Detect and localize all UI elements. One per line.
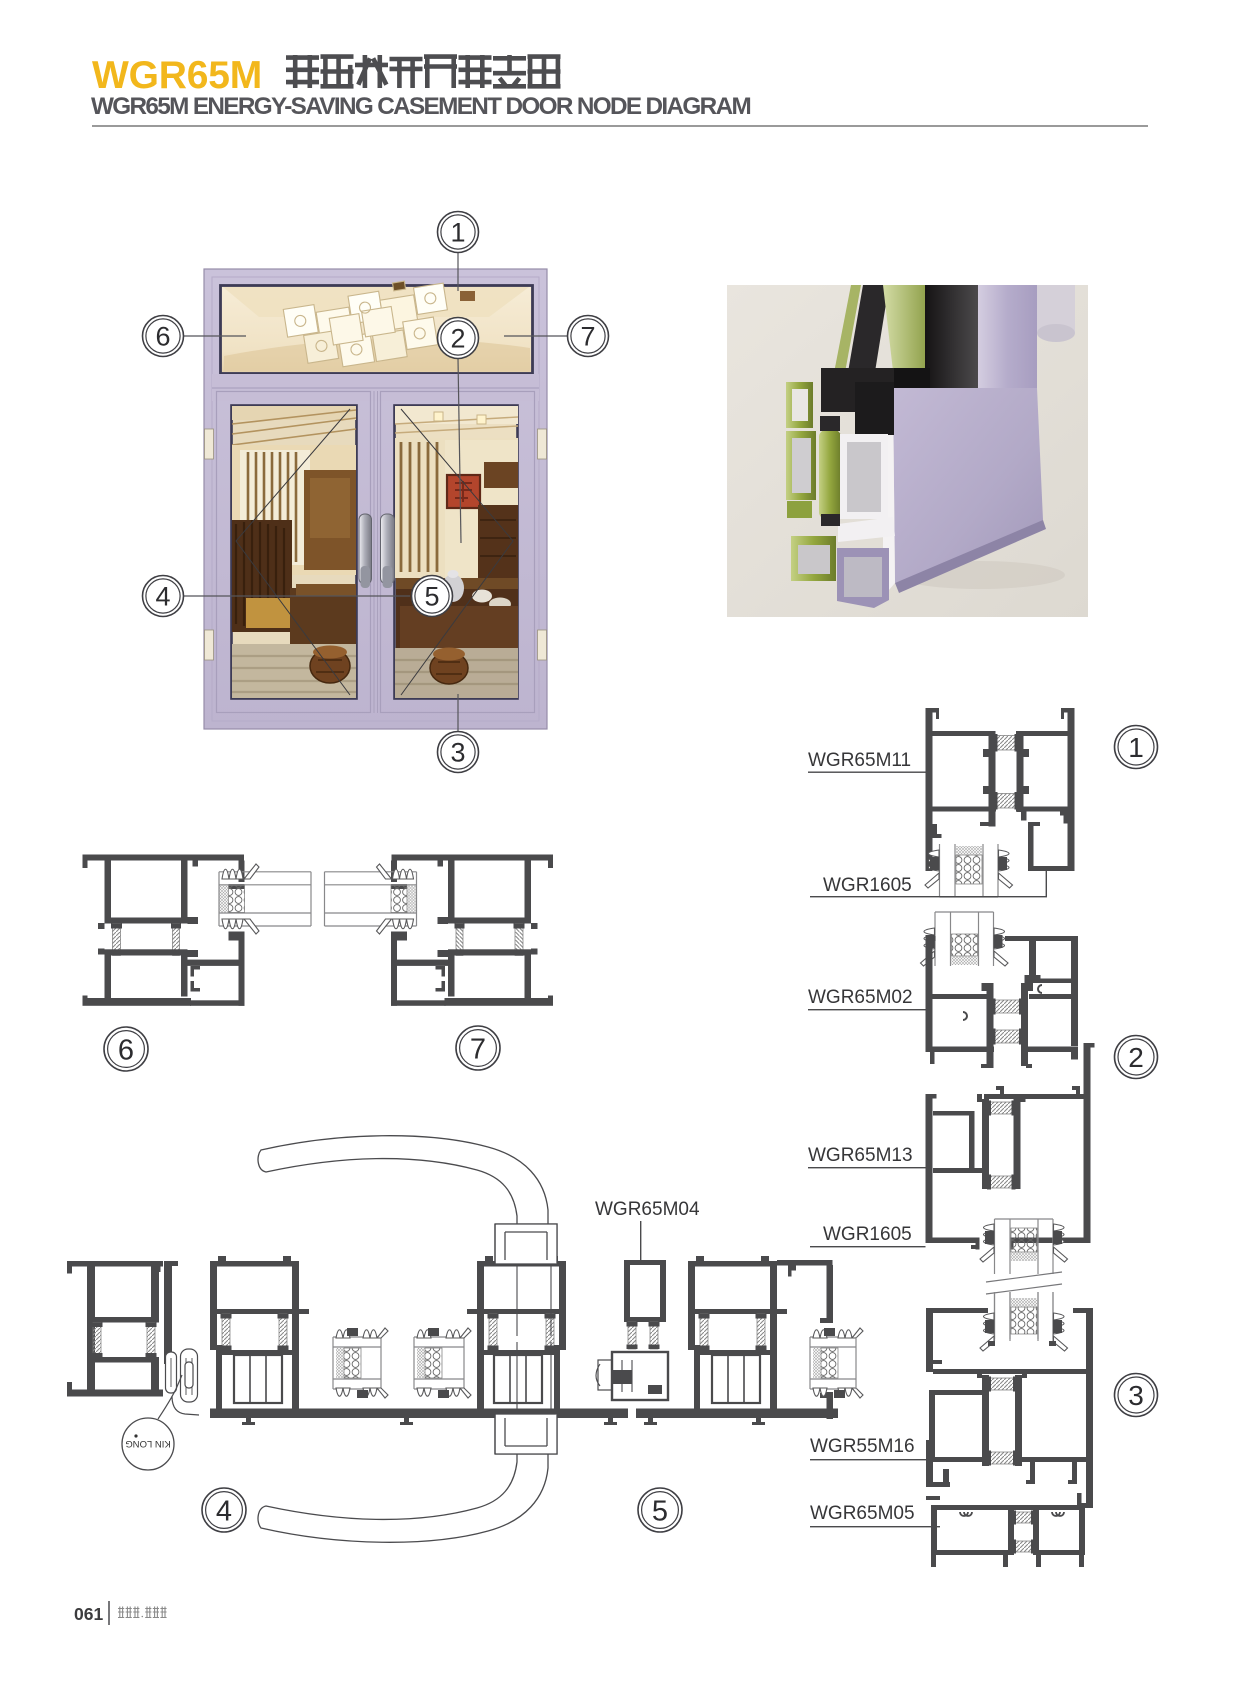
svg-text:WGR65M02: WGR65M02 — [808, 987, 913, 1008]
svg-text:4: 4 — [155, 582, 170, 612]
svg-text:WGR65M05: WGR65M05 — [810, 1503, 915, 1524]
svg-text:3: 3 — [1128, 1380, 1144, 1411]
svg-text:061: 061 — [74, 1604, 103, 1624]
svg-text:6: 6 — [155, 322, 170, 352]
svg-text:WGR65M04: WGR65M04 — [595, 1199, 700, 1220]
svg-text:4: 4 — [216, 1495, 232, 1527]
svg-text:2: 2 — [1128, 1042, 1144, 1073]
svg-text:WGR65M13: WGR65M13 — [808, 1145, 913, 1166]
svg-text:6: 6 — [118, 1034, 134, 1066]
svg-text:WGR1605: WGR1605 — [823, 1224, 912, 1245]
svg-text:WGR65M ENERGY-SAVING CASEMENT: WGR65M ENERGY-SAVING CASEMENT DOOR NODE … — [91, 93, 750, 120]
svg-text:2: 2 — [450, 324, 465, 354]
svg-text:1: 1 — [450, 218, 465, 248]
svg-text:5: 5 — [424, 582, 439, 612]
svg-text:WGR65M11: WGR65M11 — [808, 750, 911, 771]
svg-text:5: 5 — [652, 1495, 668, 1527]
svg-text:3: 3 — [450, 738, 465, 768]
svg-text:1: 1 — [1128, 732, 1144, 763]
svg-text:7: 7 — [580, 322, 595, 352]
svg-text:KIN LONG: KIN LONG — [125, 1438, 170, 1449]
svg-text:7: 7 — [470, 1033, 486, 1065]
svg-text:WGR55M16: WGR55M16 — [810, 1436, 915, 1457]
svg-text:WGR65M: WGR65M — [92, 54, 262, 97]
svg-text:WGR1605: WGR1605 — [823, 875, 912, 896]
